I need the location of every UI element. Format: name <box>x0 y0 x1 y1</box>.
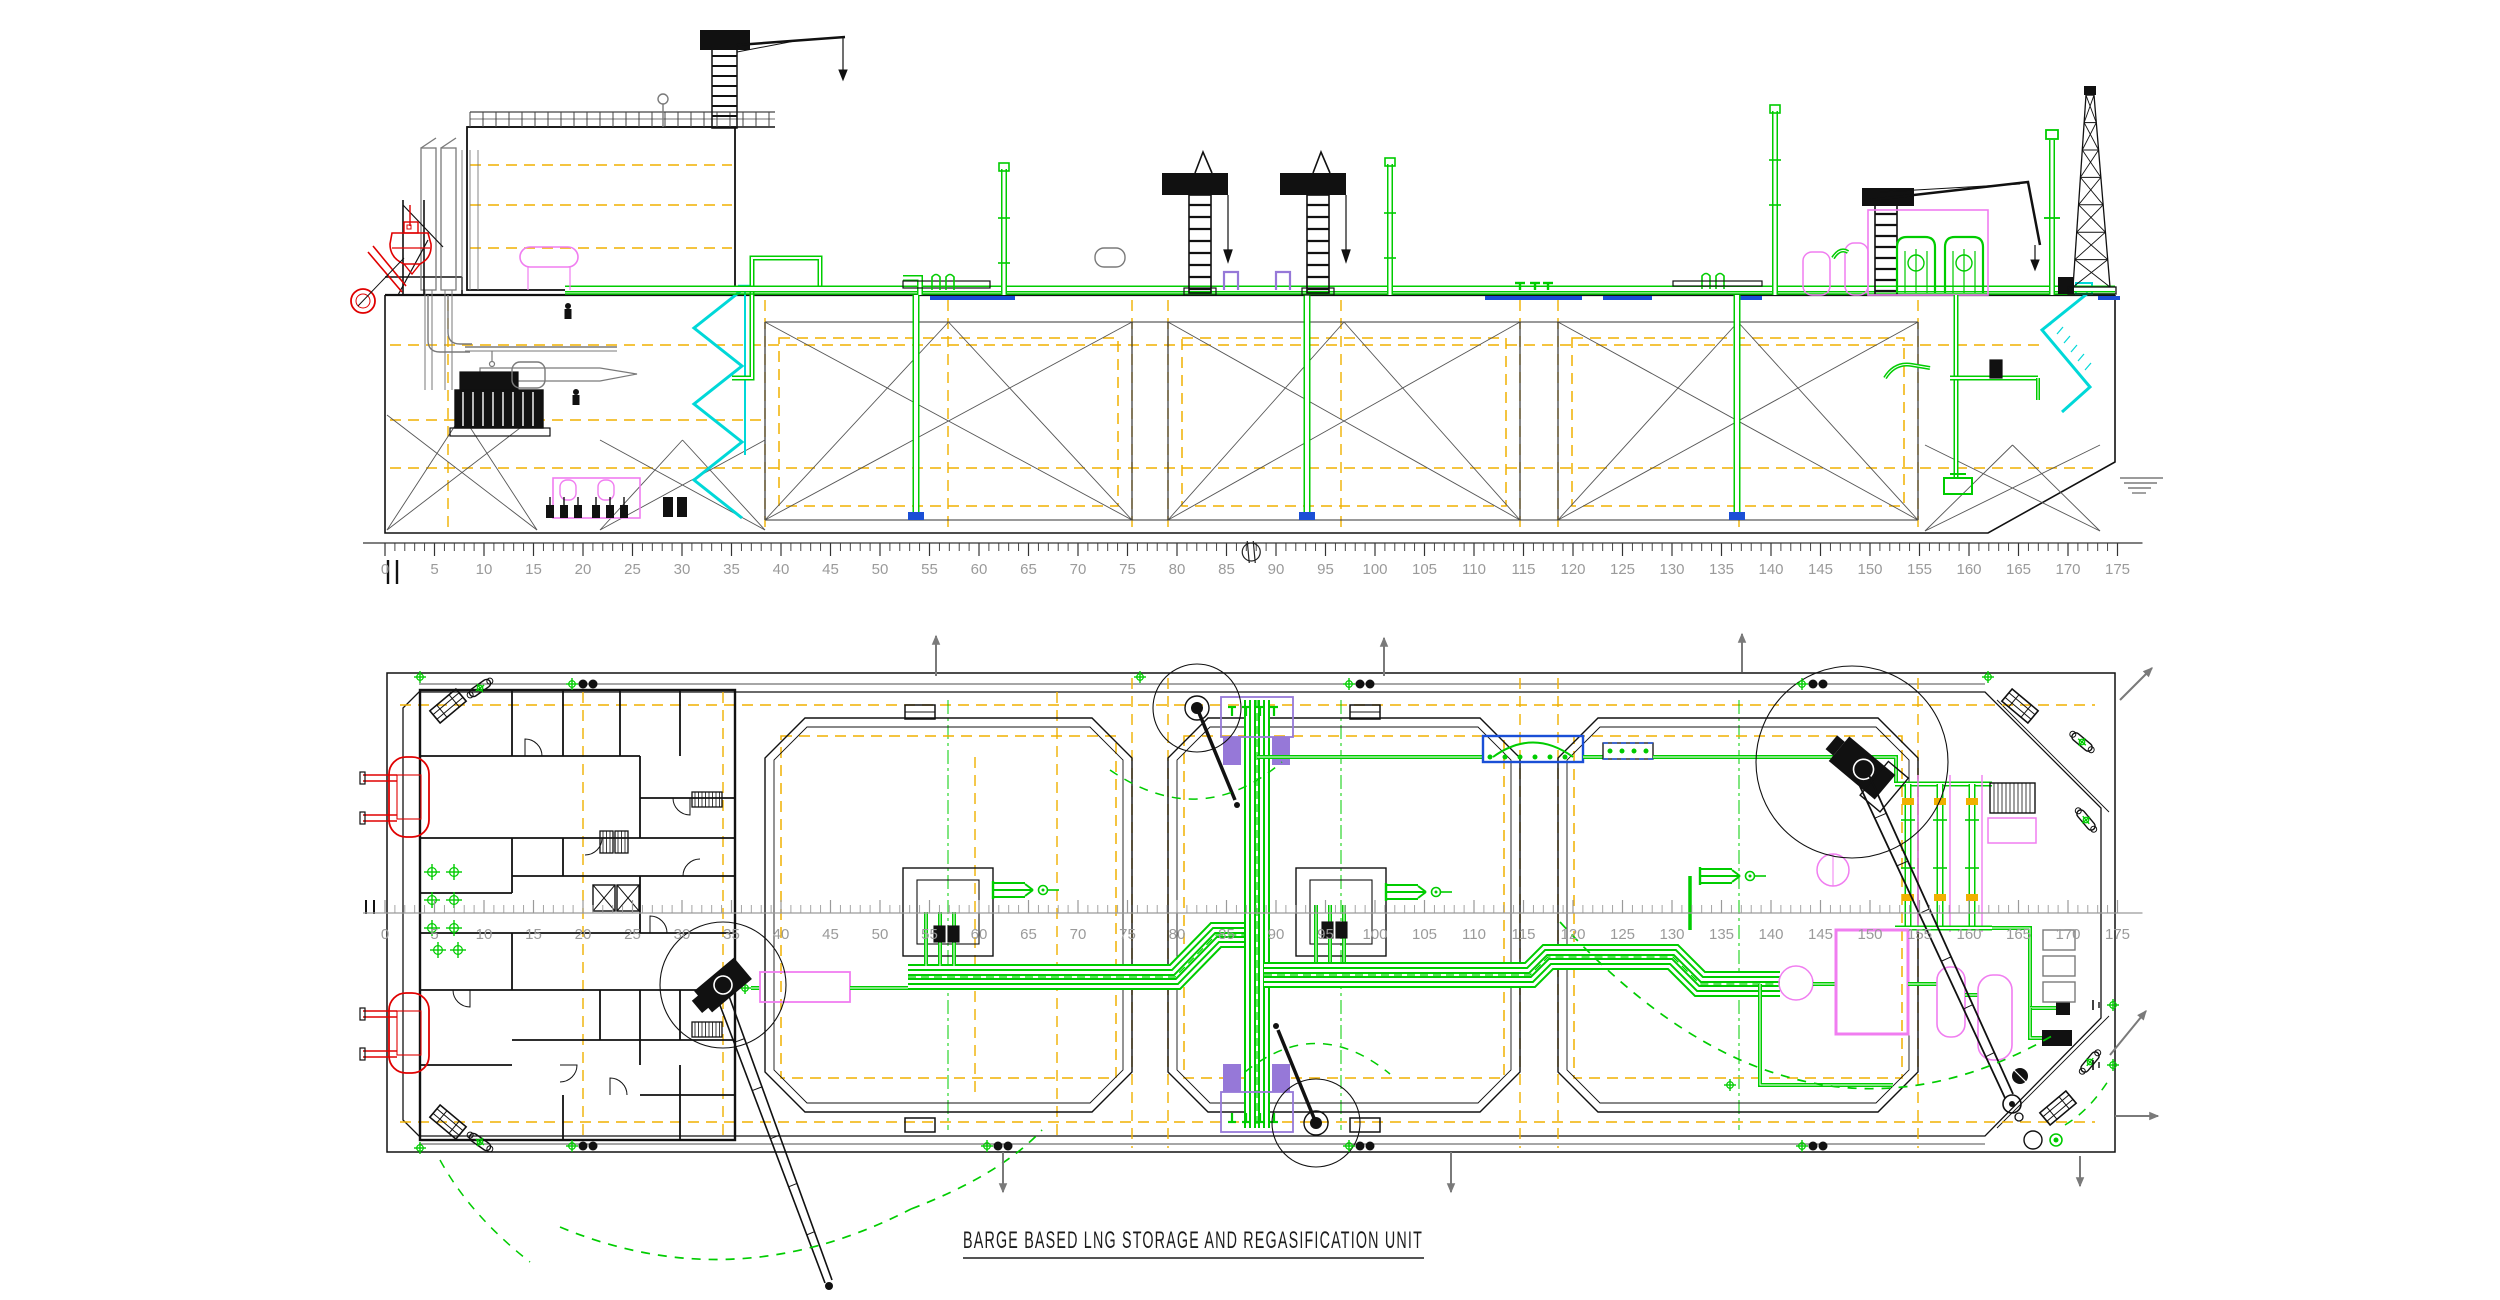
svg-text:65: 65 <box>1020 561 1037 578</box>
svg-text:170: 170 <box>2055 561 2080 578</box>
svg-text:35: 35 <box>723 926 740 943</box>
svg-text:60: 60 <box>971 561 988 578</box>
elevation-hull <box>385 277 2163 584</box>
svg-text:150: 150 <box>1857 926 1882 943</box>
plan-accommodation <box>420 690 735 1140</box>
svg-text:55: 55 <box>921 926 938 943</box>
svg-text:65: 65 <box>1020 926 1037 943</box>
svg-text:25: 25 <box>624 926 641 943</box>
svg-text:135: 135 <box>1709 561 1734 578</box>
svg-text:40: 40 <box>773 926 790 943</box>
svg-text:105: 105 <box>1412 561 1437 578</box>
svg-text:0: 0 <box>381 926 389 943</box>
svg-text:0: 0 <box>381 561 389 578</box>
svg-text:165: 165 <box>2006 926 2031 943</box>
svg-text:30: 30 <box>674 561 691 578</box>
svg-text:140: 140 <box>1758 561 1783 578</box>
svg-text:45: 45 <box>822 926 839 943</box>
svg-text:145: 145 <box>1808 561 1833 578</box>
svg-text:120: 120 <box>1560 926 1585 943</box>
plan-view: 0510152025303540455055606570758085909510… <box>360 634 2158 1290</box>
plan-piping <box>739 697 1896 1132</box>
svg-text:75: 75 <box>1119 926 1136 943</box>
drawing-canvas: 0510152025303540455055606570758085909510… <box>0 0 2500 1300</box>
svg-text:50: 50 <box>872 561 889 578</box>
svg-text:175: 175 <box>2105 926 2130 943</box>
svg-text:130: 130 <box>1659 561 1684 578</box>
elevation-view: 0510152025303540455055606570758085909510… <box>351 30 2163 584</box>
svg-text:110: 110 <box>1462 926 1486 943</box>
svg-text:80: 80 <box>1169 926 1186 943</box>
svg-text:120: 120 <box>1560 561 1585 578</box>
svg-text:125: 125 <box>1610 561 1635 578</box>
svg-text:155: 155 <box>1907 561 1932 578</box>
elevation-regas-equipment <box>1803 130 2074 494</box>
svg-text:10: 10 <box>476 926 493 943</box>
svg-text:75: 75 <box>1119 561 1136 578</box>
svg-text:15: 15 <box>525 926 542 943</box>
svg-text:40: 40 <box>773 561 790 578</box>
svg-text:20: 20 <box>575 926 592 943</box>
svg-text:70: 70 <box>1070 926 1087 943</box>
svg-text:140: 140 <box>1758 926 1783 943</box>
svg-text:100: 100 <box>1362 926 1387 943</box>
svg-text:25: 25 <box>624 561 641 578</box>
elevation-engine-room <box>428 295 687 518</box>
svg-text:90: 90 <box>1268 561 1285 578</box>
svg-text:105: 105 <box>1412 926 1437 943</box>
svg-text:95: 95 <box>1317 561 1334 578</box>
svg-text:150: 150 <box>1857 561 1882 578</box>
svg-text:155: 155 <box>1907 926 1932 943</box>
svg-text:170: 170 <box>2055 926 2080 943</box>
svg-text:100: 100 <box>1362 561 1387 578</box>
svg-text:165: 165 <box>2006 561 2031 578</box>
elevation-centerlines <box>390 165 2095 531</box>
svg-text:115: 115 <box>1512 561 1536 578</box>
svg-text:135: 135 <box>1709 926 1734 943</box>
elevation-stairs <box>694 283 2092 518</box>
svg-text:80: 80 <box>1169 561 1186 578</box>
svg-text:50: 50 <box>872 926 889 943</box>
svg-text:30: 30 <box>674 926 691 943</box>
elevation-cranes <box>700 30 2040 295</box>
svg-text:5: 5 <box>430 561 438 578</box>
svg-text:130: 130 <box>1659 926 1684 943</box>
elevation-deck-piping <box>520 105 2120 520</box>
svg-text:160: 160 <box>1956 561 1981 578</box>
svg-text:45: 45 <box>822 561 839 578</box>
elevation-station-ruler: 0510152025303540455055606570758085909510… <box>363 541 2143 578</box>
elevation-cargo-holds <box>387 322 2100 531</box>
svg-text:85: 85 <box>1218 561 1235 578</box>
svg-text:55: 55 <box>921 561 938 578</box>
svg-text:70: 70 <box>1070 561 1087 578</box>
plan-lifeboats <box>360 757 429 1073</box>
flare-tower <box>2068 86 2116 294</box>
svg-text:85: 85 <box>1218 926 1235 943</box>
title-block: BARGE BASED LNG STORAGE AND REGASIFICATI… <box>963 1227 1424 1258</box>
svg-text:90: 90 <box>1268 926 1285 943</box>
drawing-sheet: { "title": { "text": "BARGE BASED LNG ST… <box>0 0 2500 1300</box>
svg-text:5: 5 <box>430 926 438 943</box>
svg-text:95: 95 <box>1317 926 1334 943</box>
svg-text:175: 175 <box>2105 561 2130 578</box>
svg-text:110: 110 <box>1462 561 1486 578</box>
svg-text:20: 20 <box>575 561 592 578</box>
svg-text:115: 115 <box>1512 926 1536 943</box>
svg-text:35: 35 <box>723 561 740 578</box>
svg-text:60: 60 <box>971 926 988 943</box>
svg-text:125: 125 <box>1610 926 1635 943</box>
svg-text:10: 10 <box>476 561 493 578</box>
svg-text:15: 15 <box>525 561 542 578</box>
svg-text:145: 145 <box>1808 926 1833 943</box>
drawing-title: BARGE BASED LNG STORAGE AND REGASIFICATI… <box>963 1227 1423 1254</box>
svg-text:160: 160 <box>1956 926 1981 943</box>
